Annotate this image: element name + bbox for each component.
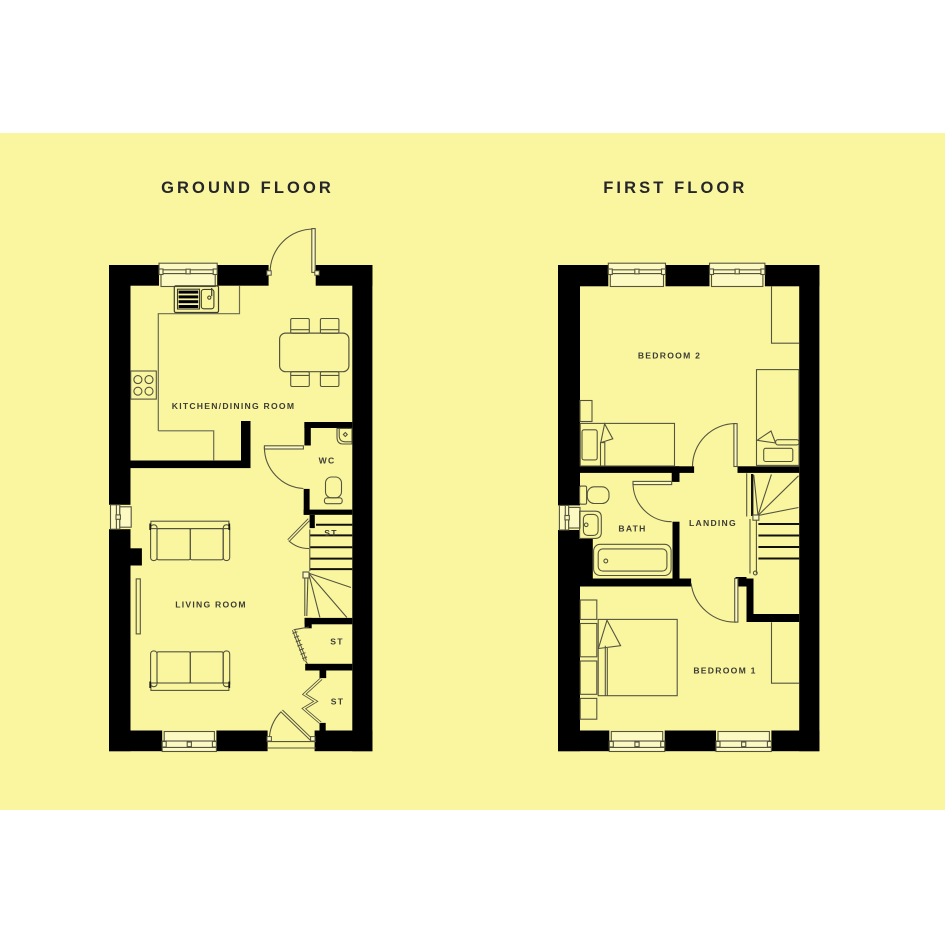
svg-text:GROUND FLOOR: GROUND FLOOR <box>161 179 334 197</box>
svg-text:ST: ST <box>324 528 337 538</box>
svg-text:BATH: BATH <box>618 524 646 534</box>
svg-text:LIVING ROOM: LIVING ROOM <box>175 600 247 610</box>
svg-text:ST: ST <box>330 637 343 647</box>
svg-text:KITCHEN/DINING ROOM: KITCHEN/DINING ROOM <box>172 401 296 411</box>
svg-text:BEDROOM 1: BEDROOM 1 <box>693 666 756 676</box>
svg-text:ST: ST <box>331 697 344 707</box>
svg-text:BEDROOM 2: BEDROOM 2 <box>638 351 701 361</box>
svg-text:LANDING: LANDING <box>689 518 737 528</box>
svg-text:WC: WC <box>319 456 336 466</box>
svg-text:FIRST FLOOR: FIRST FLOOR <box>603 179 747 197</box>
